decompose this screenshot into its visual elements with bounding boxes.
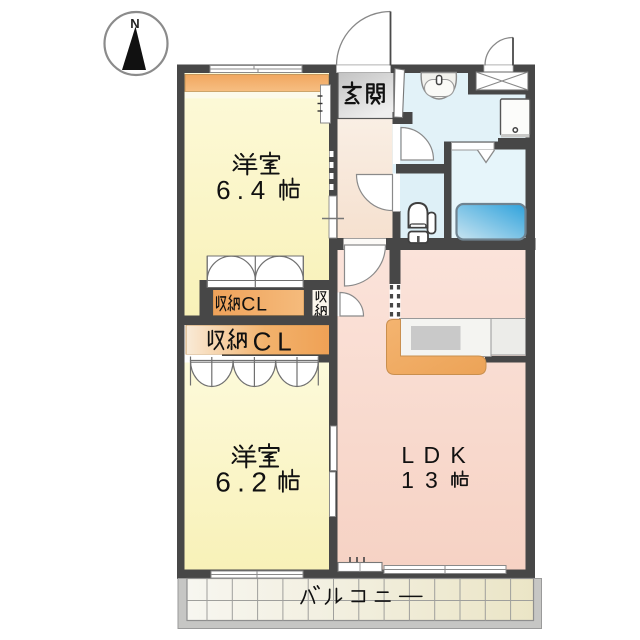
svg-text:.: . xyxy=(237,467,245,498)
svg-text:L: L xyxy=(277,326,291,356)
svg-text:6: 6 xyxy=(215,467,231,498)
svg-text:D: D xyxy=(423,442,440,468)
svg-text:L: L xyxy=(256,293,267,315)
svg-text:N: N xyxy=(130,16,139,31)
svg-text:.: . xyxy=(237,175,244,205)
svg-text:3: 3 xyxy=(425,467,438,493)
svg-text:6: 6 xyxy=(216,175,230,205)
svg-text:C: C xyxy=(241,293,255,315)
svg-text:1: 1 xyxy=(401,467,414,493)
svg-text:L: L xyxy=(401,442,414,468)
svg-text:C: C xyxy=(253,326,272,356)
svg-text:4: 4 xyxy=(251,175,265,205)
svg-text:K: K xyxy=(450,442,466,468)
svg-text:2: 2 xyxy=(251,467,267,498)
